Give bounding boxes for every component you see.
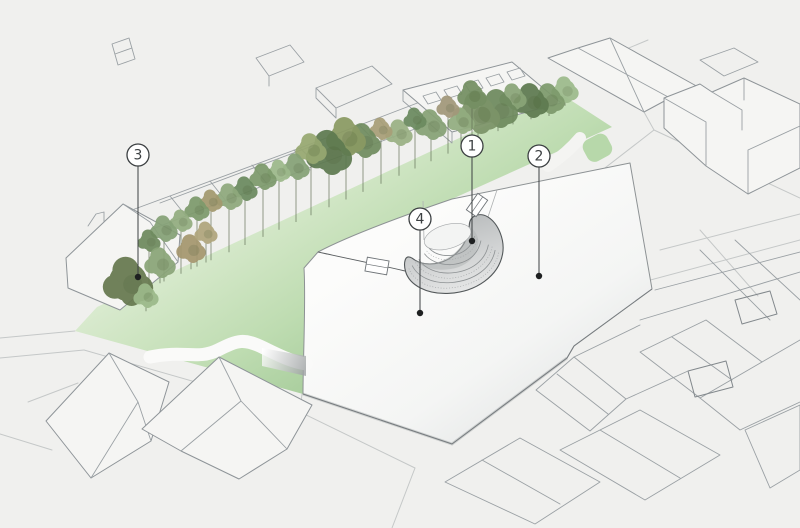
tree-canopy-shade — [474, 107, 491, 124]
site-plan-canvas: 1234 — [0, 0, 800, 528]
callout-label: 1 — [468, 139, 477, 155]
tree-canopy-shade — [396, 129, 406, 139]
callout-dot — [469, 238, 475, 244]
tree-canopy-shade — [469, 91, 480, 102]
tree-canopy-shade — [379, 126, 388, 135]
tree-canopy-shade — [195, 205, 205, 215]
tree-canopy-shade — [446, 104, 455, 113]
tree-canopy-shade — [428, 121, 440, 133]
tree-canopy-shade — [243, 185, 253, 195]
tree-canopy-shade — [157, 259, 169, 271]
tree-canopy-shade — [147, 238, 156, 247]
tree-canopy-shade — [188, 245, 199, 256]
tree-canopy-shade — [458, 117, 468, 127]
tree-canopy-shade — [293, 163, 303, 173]
callout-dot — [536, 273, 542, 279]
tree-canopy-shade — [562, 86, 572, 96]
tree-canopy-shade — [277, 168, 286, 177]
tree-canopy-shade — [226, 193, 236, 203]
tree-canopy-shade — [413, 116, 422, 125]
callout-label: 4 — [416, 212, 425, 228]
tree-canopy-shade — [342, 131, 357, 146]
callout-dot — [135, 274, 141, 280]
tree-canopy-shade — [260, 173, 270, 183]
callout-label: 3 — [134, 148, 143, 164]
tree-canopy-shade — [510, 93, 520, 103]
tree-canopy-shade — [209, 198, 218, 207]
tree-canopy-shade — [204, 230, 213, 239]
tree-canopy-shade — [179, 218, 188, 227]
tree-canopy-shade — [144, 292, 154, 302]
callout-label: 2 — [535, 149, 544, 165]
callout-dot — [417, 310, 423, 316]
tree-canopy-shade — [308, 145, 320, 157]
tree-canopy-shade — [161, 225, 171, 235]
tree-canopy-shade — [325, 146, 343, 164]
tree-canopy-shade — [528, 96, 542, 110]
